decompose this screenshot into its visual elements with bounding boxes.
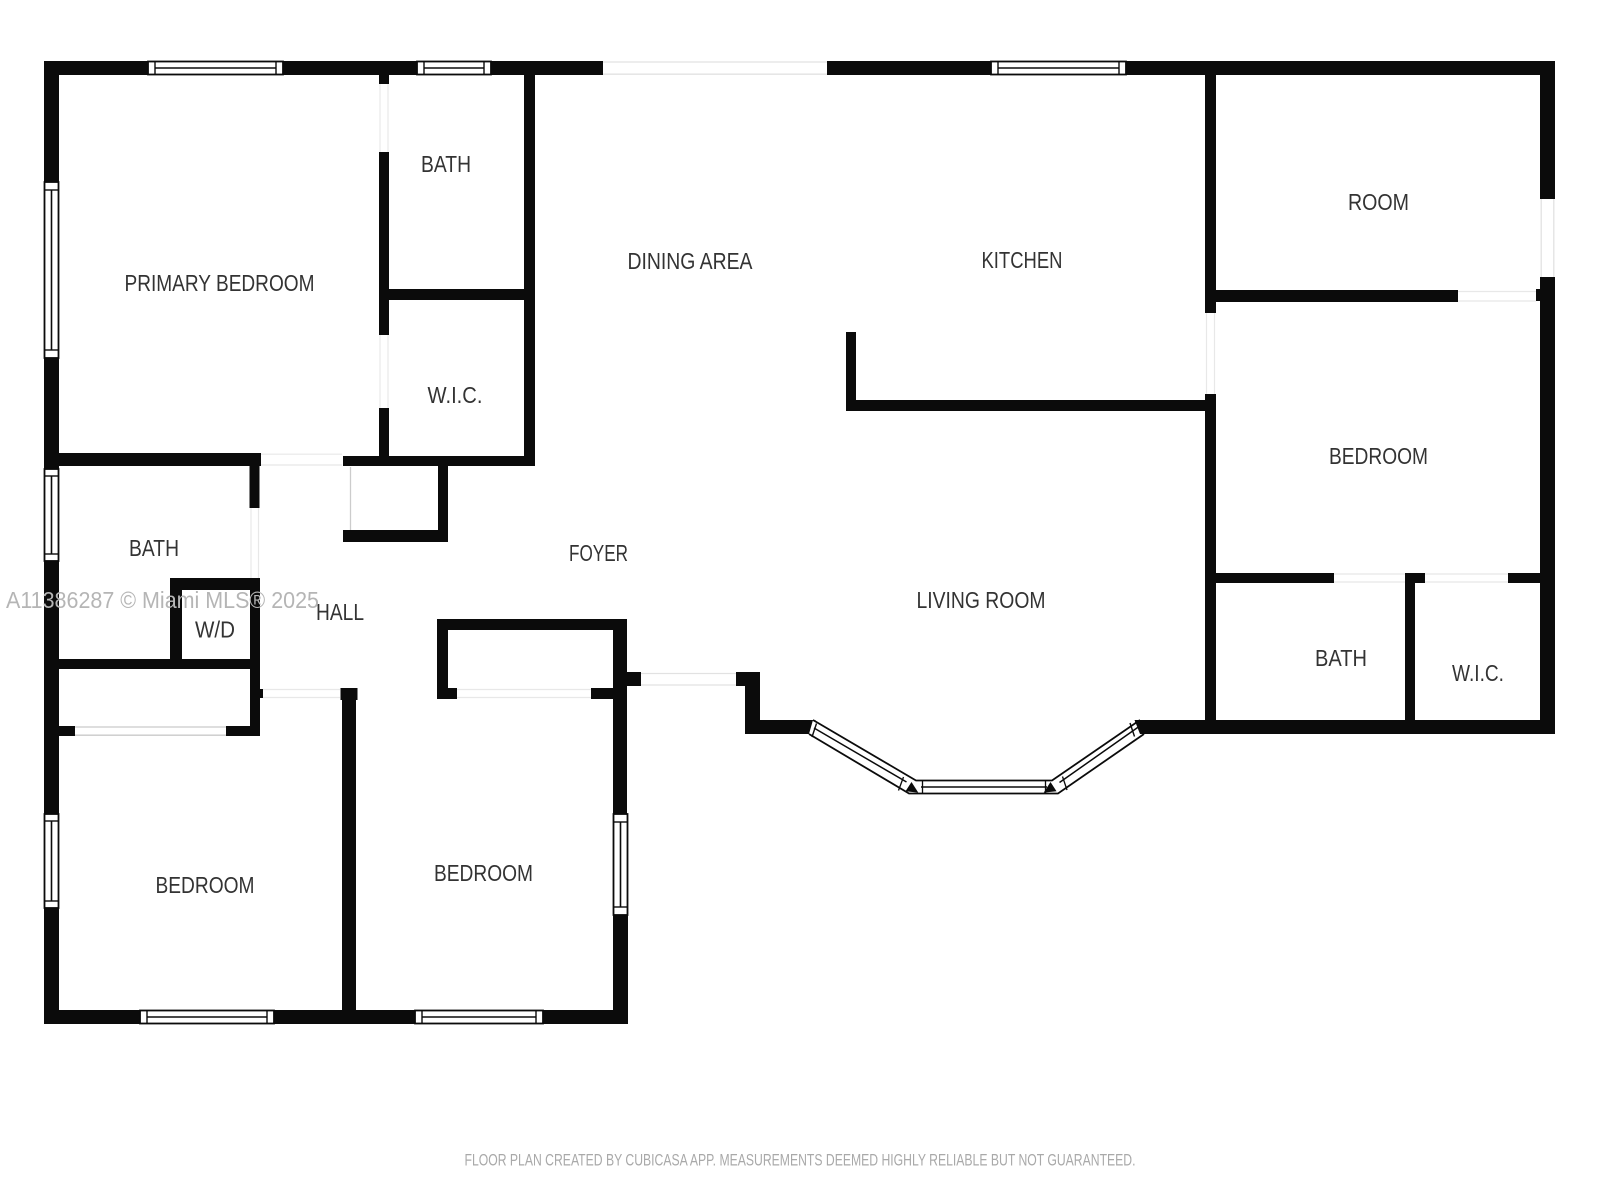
svg-text:LIVING ROOM: LIVING ROOM (917, 587, 1046, 613)
svg-text:W/D: W/D (195, 617, 235, 643)
svg-text:ROOM: ROOM (1348, 189, 1409, 215)
svg-text:BATH: BATH (129, 535, 179, 561)
svg-text:KITCHEN: KITCHEN (982, 247, 1063, 273)
svg-text:BEDROOM: BEDROOM (156, 872, 255, 898)
svg-text:HALL: HALL (316, 599, 364, 625)
svg-text:DINING AREA: DINING AREA (628, 248, 754, 274)
svg-text:W.I.C.: W.I.C. (428, 382, 483, 408)
svg-text:PRIMARY BEDROOM: PRIMARY BEDROOM (125, 270, 315, 296)
svg-text:BATH: BATH (421, 151, 471, 177)
svg-text:FOYER: FOYER (569, 540, 628, 566)
svg-text:W.I.C.: W.I.C. (1452, 660, 1504, 686)
svg-text:BEDROOM: BEDROOM (434, 860, 533, 886)
svg-text:FLOOR PLAN CREATED BY CUBICASA: FLOOR PLAN CREATED BY CUBICASA APP. MEAS… (465, 1152, 1136, 1170)
svg-text:A11386287 © Miami MLS® 2025: A11386287 © Miami MLS® 2025 (6, 587, 319, 613)
svg-text:BEDROOM: BEDROOM (1329, 443, 1428, 469)
svg-text:BATH: BATH (1315, 645, 1367, 671)
